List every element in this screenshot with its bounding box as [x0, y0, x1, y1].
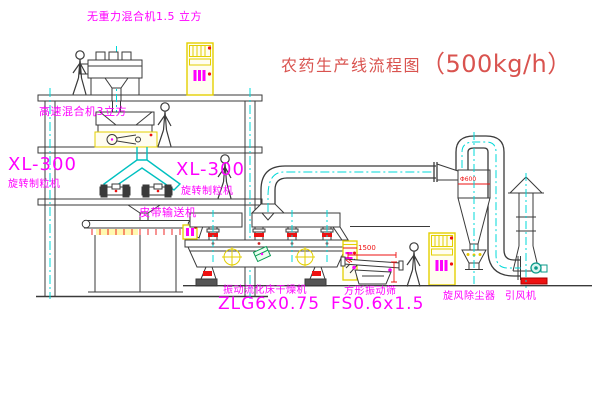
- fluid-bed-dryer-machine: [185, 204, 430, 286]
- label-granulator-center-model: XL-300: [176, 161, 245, 179]
- dim-cyclone-diameter: Φ600: [460, 177, 476, 183]
- label-screen-model: FS0.6x1.5: [331, 296, 424, 313]
- label-fan: 引风机: [505, 292, 537, 302]
- gravity-mixer: [80, 46, 142, 112]
- bucket-elevator-top: [187, 43, 213, 95]
- label-cyclone: 旋风除尘器: [443, 292, 496, 302]
- label-granulator-left-name: 旋转制粒机: [8, 180, 61, 190]
- granulator-left-machine: [100, 184, 130, 197]
- pesticide-line-flow-drawing: 无重力混合机1.5 立方 农药生产线流程图 （500kg/h） 高速混合机3立方…: [0, 0, 600, 403]
- label-gravity-mixer: 无重力混合机1.5 立方: [87, 11, 202, 22]
- belt-conveyor-machine: [82, 220, 196, 292]
- bucket-elevator-right: [429, 233, 455, 285]
- label-high-speed-mixer: 高速混合机3立方: [39, 106, 127, 117]
- person-ground: [407, 243, 420, 287]
- dim-screen-length: 1500: [358, 245, 376, 252]
- label-granulator-left-model: XL-300: [8, 156, 77, 174]
- induced-draft-fan-machine: [521, 263, 547, 284]
- label-dryer-model: ZLG6x0.75: [218, 296, 320, 313]
- title-chinese: 农药生产线流程图: [281, 52, 421, 79]
- title-capacity: （500kg/h）: [421, 44, 572, 79]
- person-floor2: [158, 103, 171, 147]
- exhaust-duct: [261, 162, 437, 204]
- label-belt-conveyor: 皮带输送机: [139, 207, 197, 218]
- granulator-center-machine: [142, 184, 172, 197]
- drawing-title: 农药生产线流程图 （500kg/h）: [281, 44, 572, 79]
- label-granulator-center-name: 旋转制粒机: [181, 187, 234, 197]
